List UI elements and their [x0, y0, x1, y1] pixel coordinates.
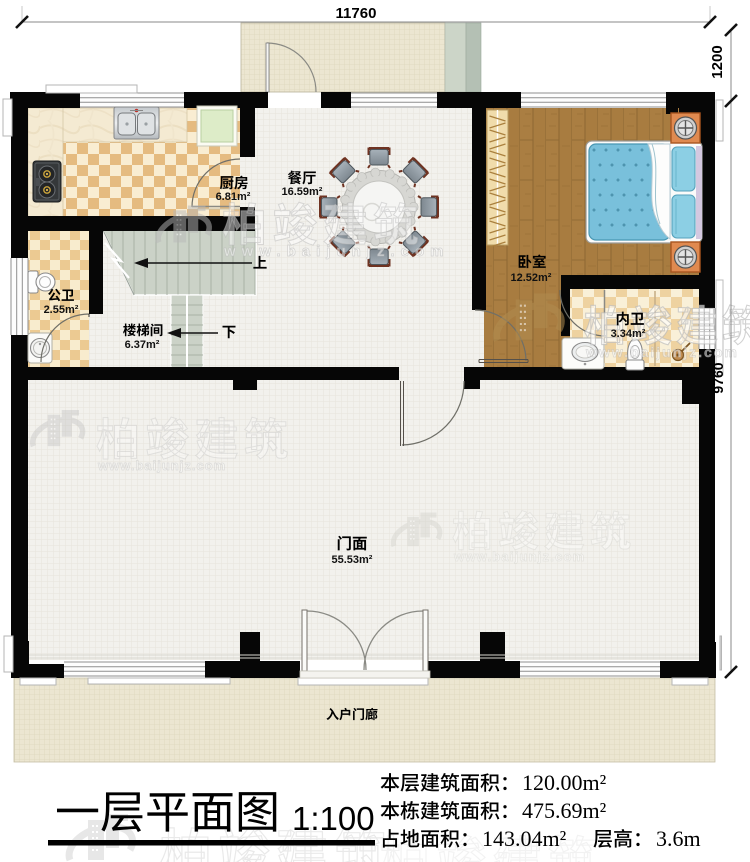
svg-text:www.baijunjz.com: www.baijunjz.com: [453, 549, 585, 564]
svg-text:55.53m²: 55.53m²: [332, 554, 373, 566]
svg-text:6.37m²: 6.37m²: [125, 339, 160, 351]
svg-text:6.81m²: 6.81m²: [216, 191, 251, 203]
svg-text:11760: 11760: [336, 5, 377, 22]
svg-text:3.6m: 3.6m: [656, 826, 701, 851]
svg-text:120.00m²: 120.00m²: [522, 770, 607, 795]
svg-text:12.52m²: 12.52m²: [511, 272, 552, 284]
svg-text:1200: 1200: [709, 45, 726, 78]
svg-text:143.04m²: 143.04m²: [482, 826, 567, 851]
svg-text:www.baijunjz.com: www.baijunjz.com: [97, 458, 226, 473]
svg-text:1:100: 1:100: [292, 800, 375, 837]
svg-text:www.baijunjz.com: www.baijunjz.com: [585, 344, 739, 360]
svg-text:475.69m²: 475.69m²: [522, 798, 607, 823]
svg-text:2.55m²: 2.55m²: [44, 304, 79, 316]
svg-text:3.34m²: 3.34m²: [611, 328, 646, 340]
svg-text:16.59m²: 16.59m²: [282, 186, 323, 198]
svg-text:www.baijunjz.com: www.baijunjz.com: [223, 243, 449, 260]
svg-text:9760: 9760: [710, 362, 726, 393]
